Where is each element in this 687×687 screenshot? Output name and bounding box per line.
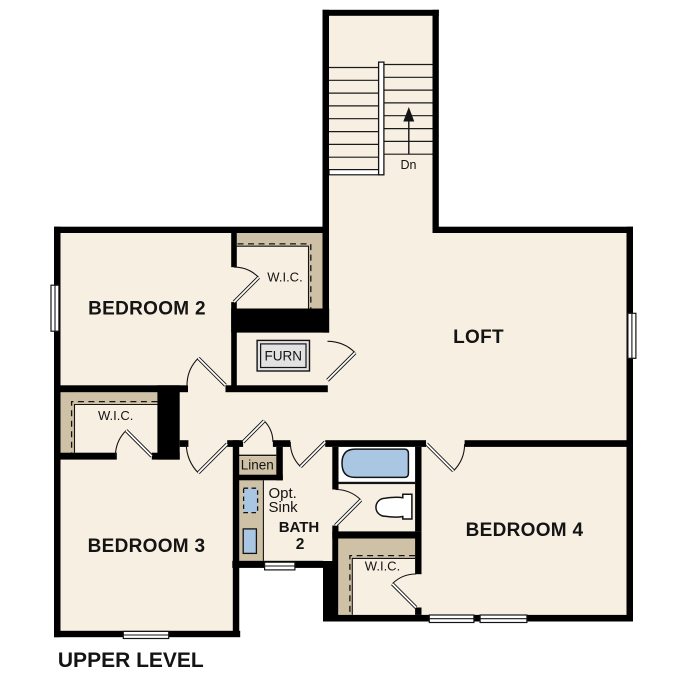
svg-text:BEDROOM 4: BEDROOM 4 bbox=[466, 520, 584, 541]
svg-text:2: 2 bbox=[296, 536, 305, 553]
svg-text:BEDROOM 3: BEDROOM 3 bbox=[88, 536, 206, 557]
svg-text:Dn: Dn bbox=[401, 158, 417, 172]
svg-text:BEDROOM 2: BEDROOM 2 bbox=[88, 299, 206, 320]
svg-text:W.I.C.: W.I.C. bbox=[267, 269, 302, 284]
svg-text:W.I.C.: W.I.C. bbox=[365, 559, 400, 574]
svg-text:W.I.C.: W.I.C. bbox=[98, 408, 133, 423]
svg-text:UPPER LEVEL: UPPER LEVEL bbox=[58, 649, 204, 672]
svg-text:BATH: BATH bbox=[279, 519, 320, 536]
svg-text:Sink: Sink bbox=[269, 499, 299, 516]
svg-text:Linen: Linen bbox=[241, 457, 274, 472]
svg-text:FURN: FURN bbox=[265, 349, 303, 364]
svg-text:LOFT: LOFT bbox=[453, 327, 504, 348]
